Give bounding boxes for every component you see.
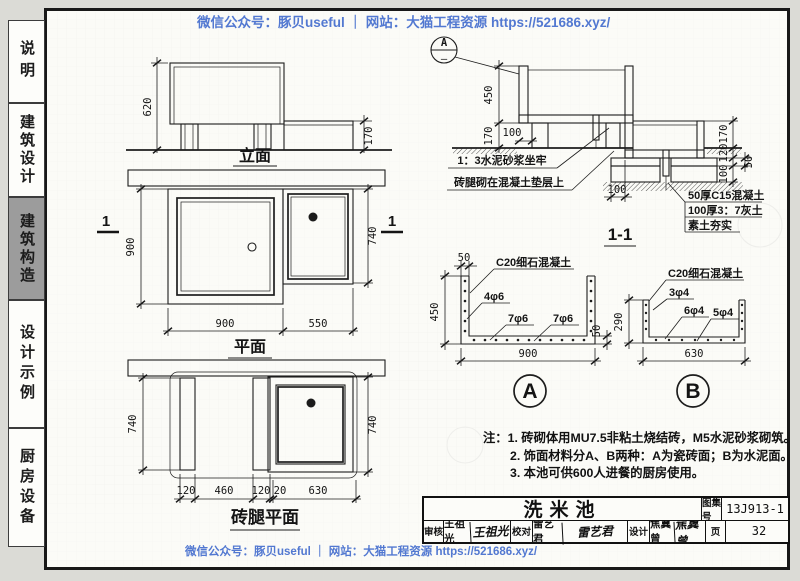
section-dim-100-inset: 100 bbox=[503, 127, 522, 139]
detail-a-dim-50-wall: 50 bbox=[458, 252, 471, 264]
section-rdim-100: 100 bbox=[718, 165, 730, 184]
plan-dim-550-bottom: 550 bbox=[309, 318, 328, 330]
brickplan-dim-20: 20 bbox=[274, 485, 287, 497]
checker-name: 雷艺君 bbox=[532, 521, 562, 543]
note-line-3: 3. 本池可供600人进餐的厨房使用。 bbox=[483, 465, 796, 483]
detail-b-rebar-bottom-2: 5φ4 bbox=[713, 307, 734, 319]
designer-name: 焦冀曾 bbox=[649, 521, 674, 543]
label-layer-lime-soil: 100厚3：7灰土 bbox=[688, 203, 763, 217]
elevation-title: 立面 bbox=[239, 146, 271, 165]
reviewer-name: 王祖光 bbox=[443, 521, 470, 543]
brickplan-dim-630: 630 bbox=[309, 485, 328, 497]
detail-a-rebar-wall: 4φ6 bbox=[484, 291, 504, 303]
label-mortar: 1：3水泥砂浆坐牢 bbox=[457, 153, 546, 167]
title-block-row-2: 审核 王祖光 王祖光 校对 雷艺君 雷艺君 设计 焦冀曾 焦冀曾 页 32 bbox=[424, 520, 788, 543]
plan-dim-740-right: 740 bbox=[367, 227, 379, 246]
detail-a-dim-450: 450 bbox=[429, 303, 441, 322]
reviewer-signature: 王祖光 bbox=[469, 519, 510, 543]
plan-dim-900-bottom: 900 bbox=[216, 318, 235, 330]
detail-a-rebar-bottom-2: 7φ6 bbox=[553, 313, 573, 325]
callout-sub: — bbox=[441, 53, 448, 65]
note-line-1: 注：1. 砖砌体用MU7.5非粘土烧结砖，M5水泥砂浆砌筑。 bbox=[483, 430, 796, 448]
detail-b-material: C20细石混凝土 bbox=[668, 266, 743, 280]
note-prefix: 注： bbox=[483, 431, 508, 445]
atlas-no-value: 13J913-1 bbox=[721, 498, 788, 520]
section-mark-right: 1 bbox=[388, 213, 396, 230]
callout-letter: A bbox=[441, 37, 448, 49]
checker-signature: 雷艺君 bbox=[561, 519, 627, 544]
detail-a-dim-50-slab: 50 bbox=[591, 325, 603, 338]
drain-dot bbox=[307, 399, 316, 408]
section-rdim-120: 120 bbox=[718, 144, 730, 163]
watermark-bottom: 微信公众号：豚贝useful ｜ 网站：大猫工程资源 https://52168… bbox=[185, 543, 537, 559]
label-brick-leg: 砖腿砌在混凝土垫层上 bbox=[454, 175, 564, 189]
detail-b-rebar-bottom-1: 6φ4 bbox=[684, 305, 705, 317]
section-dim-170: 170 bbox=[483, 127, 495, 146]
notes-block: 注：1. 砖砌体用MU7.5非粘土烧结砖，M5水泥砂浆砌筑。 2. 饰面材料分A… bbox=[483, 430, 796, 483]
section-dim-450: 450 bbox=[483, 86, 495, 105]
drawing-canvas: 620 170 立面 1 1 900 bbox=[0, 0, 800, 581]
section-rdim-170: 170 bbox=[718, 125, 730, 144]
review-label: 审核 bbox=[424, 521, 443, 543]
brickplan-dim-120b: 120 bbox=[252, 485, 271, 497]
atlas-page: 说明 建筑设计 建筑构造 设计示例 厨房设备 bbox=[0, 0, 800, 581]
label-layer-concrete: 50厚C15混凝土 bbox=[688, 188, 764, 202]
title-block-row-1: 洗米池 图集号 13J913-1 bbox=[424, 498, 788, 520]
elevation-dim-620: 620 bbox=[142, 98, 154, 117]
designer-signature: 焦冀曾 bbox=[673, 520, 705, 543]
section-rdim-50: 50 bbox=[743, 156, 755, 169]
detail-b-letter: B bbox=[685, 380, 700, 403]
detail-a-material: C20细石混凝土 bbox=[496, 255, 571, 269]
detail-b-rebar-wall: 3φ4 bbox=[669, 287, 690, 299]
page-label: 页 bbox=[705, 521, 725, 543]
elevation-dim-170: 170 bbox=[363, 127, 375, 146]
title-block: 洗米池 图集号 13J913-1 审核 王祖光 王祖光 校对 雷艺君 雷艺君 设… bbox=[422, 496, 790, 544]
detail-a-rebar-bottom-1: 7φ6 bbox=[508, 313, 528, 325]
atlas-no-label: 图集号 bbox=[701, 498, 721, 520]
detail-b-dim-630: 630 bbox=[685, 348, 704, 360]
detail-b-dim-290: 290 bbox=[613, 313, 625, 332]
section-mark-left: 1 bbox=[102, 213, 110, 230]
brickplan-dim-460: 460 bbox=[215, 485, 234, 497]
brickplan-dim-740-right: 740 bbox=[367, 416, 379, 435]
plan-title: 平面 bbox=[234, 338, 266, 356]
brickplan-title: 砖腿平面 bbox=[231, 507, 299, 527]
sheet-title: 洗米池 bbox=[424, 498, 701, 520]
watermark-top: 微信公众号：豚贝useful ｜ 网站：大猫工程资源 https://52168… bbox=[197, 11, 610, 31]
detail-a-letter: A bbox=[522, 380, 537, 403]
page-number: 32 bbox=[725, 521, 792, 543]
label-layer-rammed-earth: 素土夯实 bbox=[688, 218, 732, 232]
plan-dim-900-left: 900 bbox=[125, 238, 137, 257]
section-title: 1-1 bbox=[608, 225, 633, 244]
design-label: 设计 bbox=[627, 521, 649, 543]
brickplan-dim-120a: 120 bbox=[177, 485, 196, 497]
check-label: 校对 bbox=[510, 521, 532, 543]
section-dim-100-pad: 100 bbox=[608, 184, 627, 196]
detail-a-dim-900: 900 bbox=[519, 348, 538, 360]
brickplan-dim-740-left: 740 bbox=[127, 415, 139, 434]
drain-dot bbox=[309, 213, 318, 222]
note-line-2: 2. 饰面材料分A、B两种：A为瓷砖面；B为水泥面。 bbox=[483, 448, 796, 466]
